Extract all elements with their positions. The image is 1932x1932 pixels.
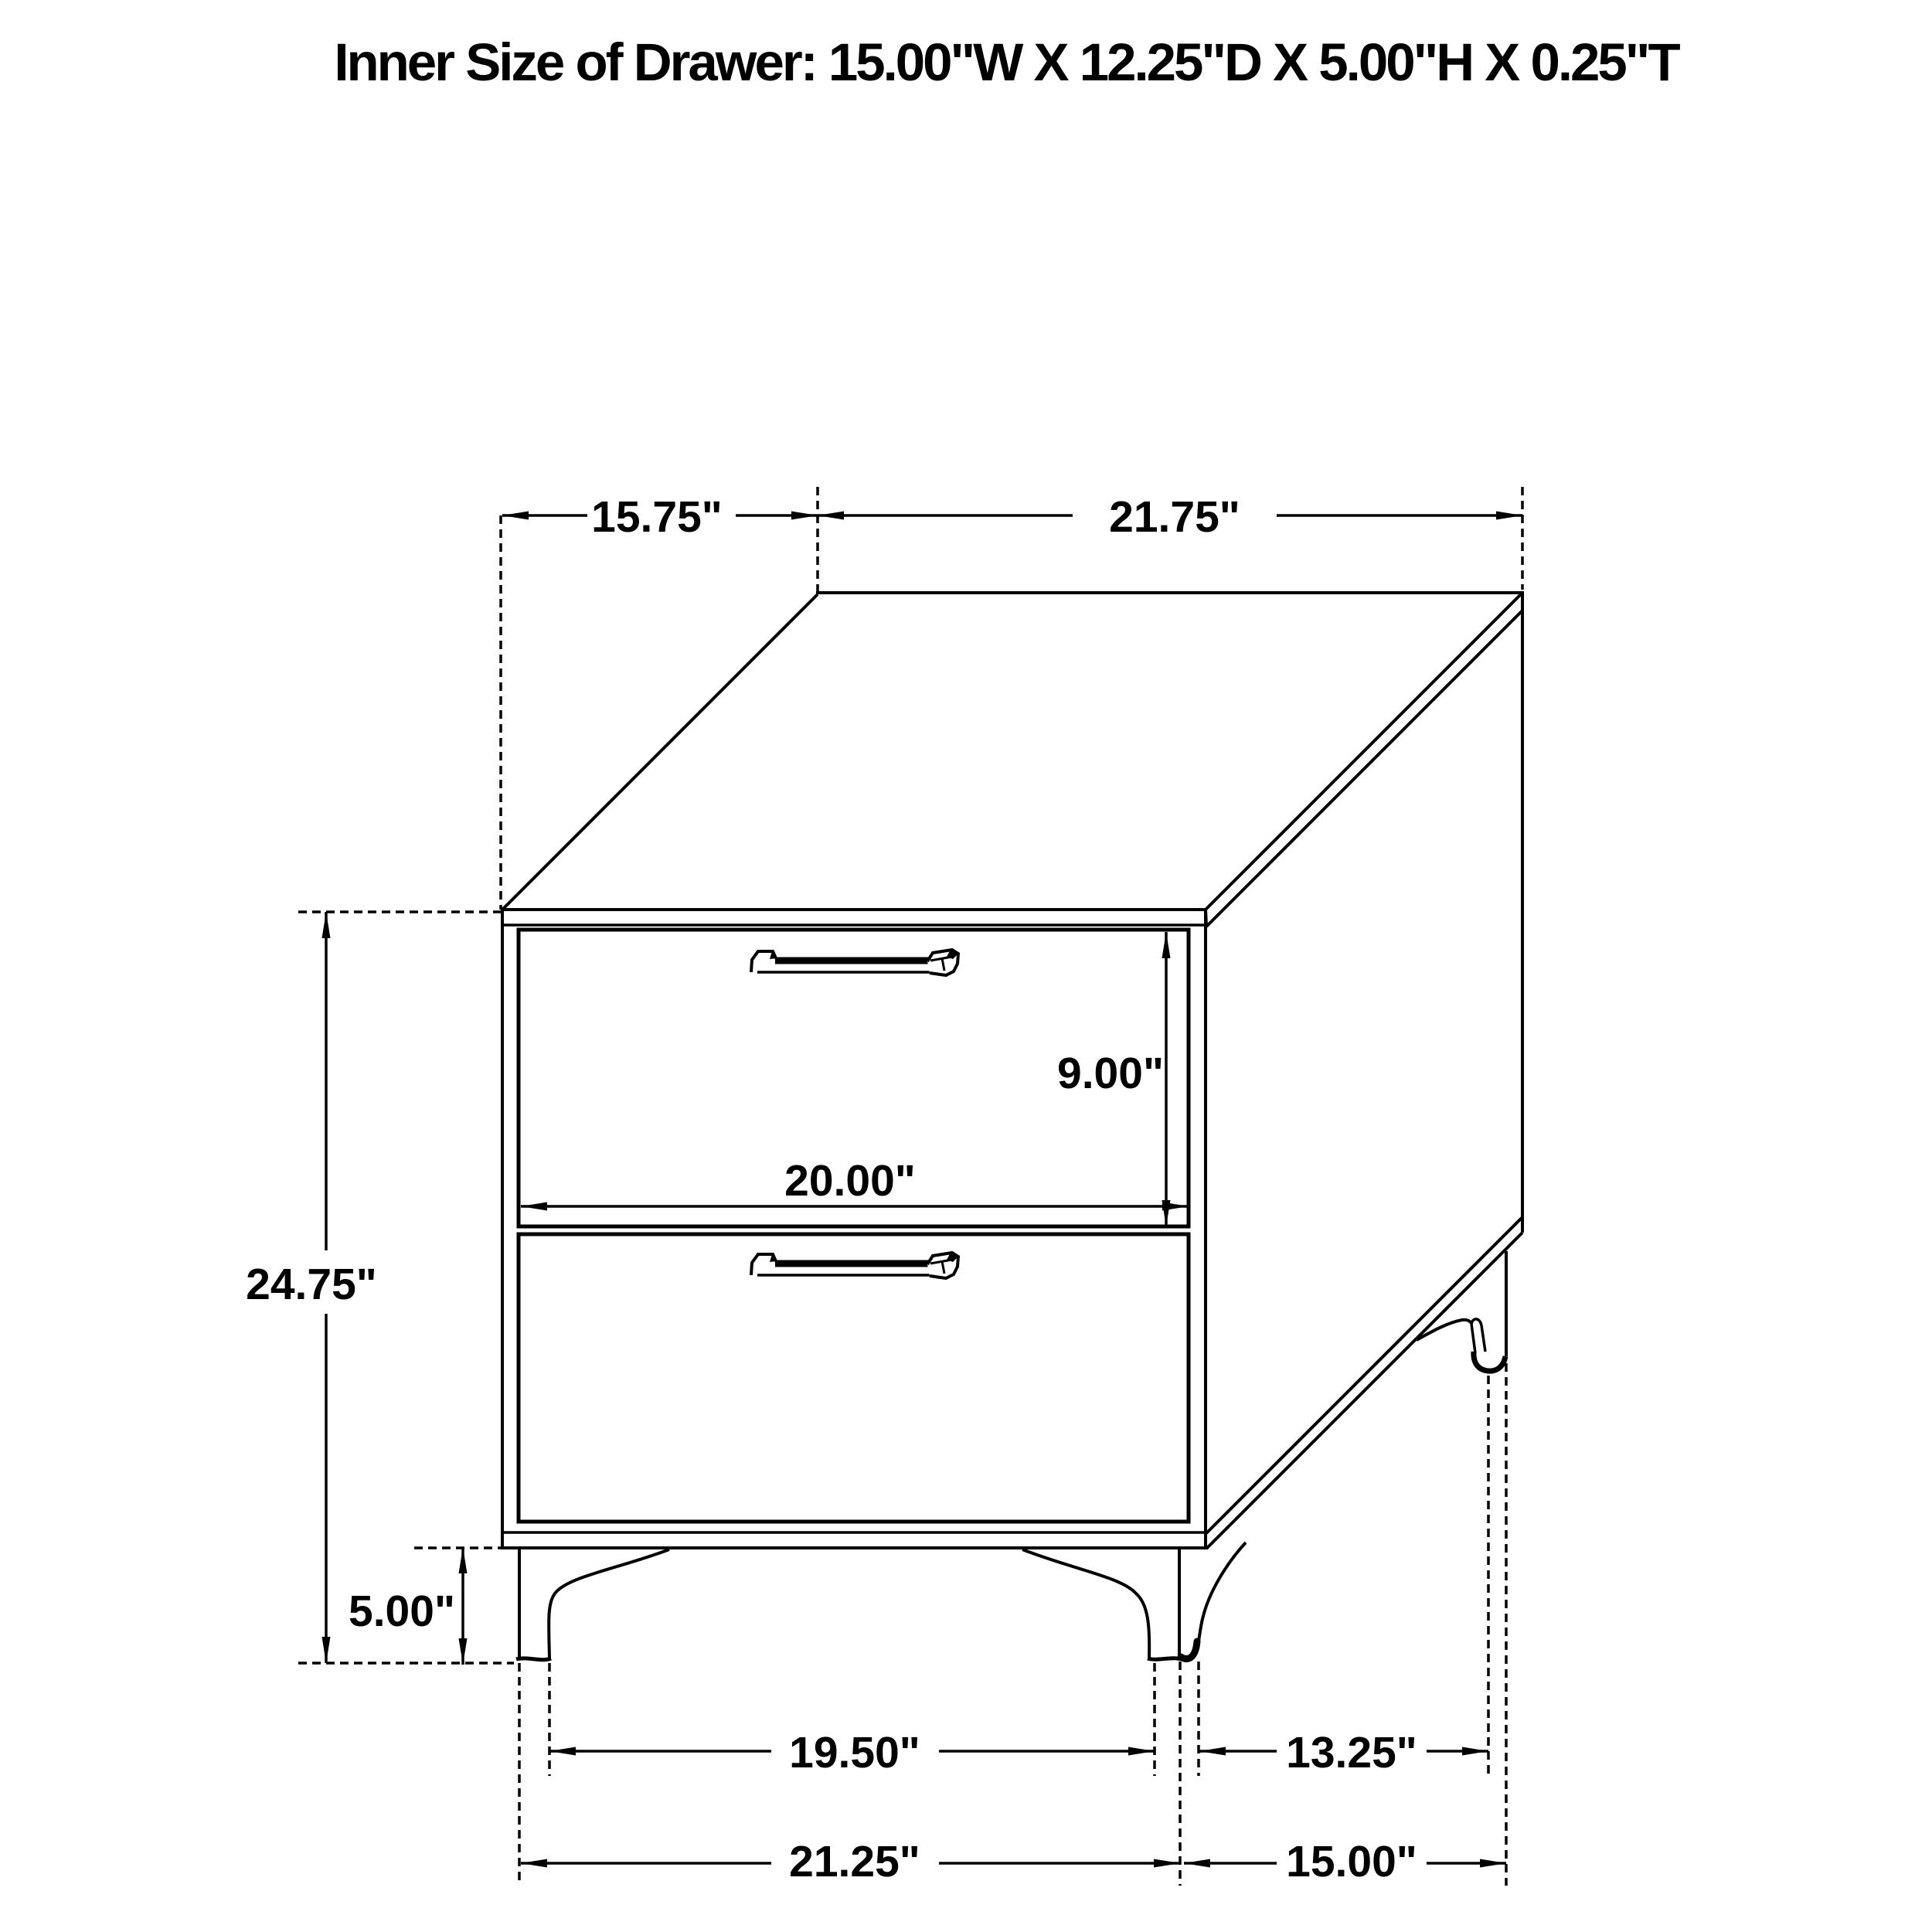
- svg-text:Inner Size of Drawer: 15.00"W: Inner Size of Drawer: 15.00"W X 12.25"D …: [334, 32, 1680, 92]
- svg-text:9.00": 9.00": [1057, 1049, 1164, 1098]
- svg-text:21.75": 21.75": [1109, 492, 1240, 542]
- svg-text:19.50": 19.50": [789, 1728, 920, 1777]
- svg-text:15.75": 15.75": [591, 492, 723, 542]
- svg-text:13.25": 13.25": [1286, 1728, 1417, 1777]
- svg-text:5.00": 5.00": [349, 1587, 455, 1636]
- svg-text:21.25": 21.25": [789, 1837, 920, 1886]
- svg-text:15.00": 15.00": [1286, 1837, 1417, 1886]
- svg-text:20.00": 20.00": [784, 1156, 916, 1206]
- svg-text:24.75": 24.75": [246, 1260, 377, 1309]
